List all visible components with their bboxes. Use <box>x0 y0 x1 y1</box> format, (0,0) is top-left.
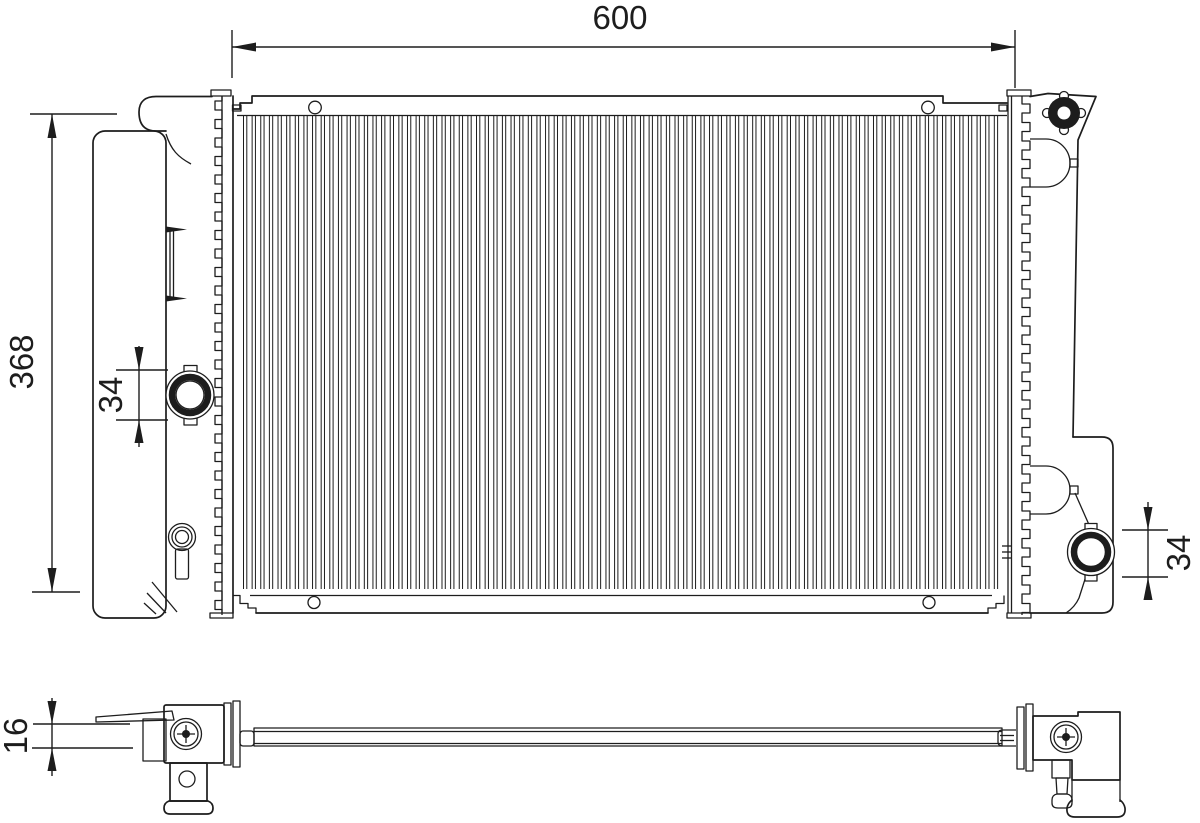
dim-outlet-label: 34 <box>1160 535 1197 572</box>
arrowhead <box>48 701 57 724</box>
bracket-cutout-upper <box>1030 139 1070 187</box>
lower-bracket <box>170 763 207 801</box>
castellated-edge-left <box>215 96 222 615</box>
right-side-plate <box>1002 90 1031 618</box>
dim-width-label: 600 <box>592 0 647 36</box>
radiator-drawing-page: 600 368 34 34 16 <box>0 0 1200 823</box>
radiator-technical-drawing: 600 368 34 34 16 <box>0 0 1200 823</box>
arrowhead <box>48 748 57 771</box>
core-pin <box>240 731 254 746</box>
left-tank <box>93 97 212 619</box>
right-tank-bulge <box>1030 437 1113 613</box>
down-pipe <box>1056 778 1068 794</box>
cutout-pin <box>1070 486 1078 494</box>
castellated-edge-right <box>1022 96 1030 615</box>
drain-plug <box>169 524 196 580</box>
end-plate <box>233 701 240 767</box>
down-pipe-foot <box>1052 794 1072 808</box>
front-view <box>93 90 1115 618</box>
left-tank-body <box>93 131 166 618</box>
hook-strap-curve <box>166 134 191 164</box>
tank-rib-line <box>1075 493 1090 527</box>
arrowhead <box>1144 507 1153 530</box>
bracket-tab-upper <box>166 227 187 233</box>
side-plate-cap <box>1007 90 1031 96</box>
left-side-plate <box>210 90 233 618</box>
end-plate <box>224 703 231 765</box>
fitting-housing <box>1033 712 1120 780</box>
bottom-header-plate <box>233 596 1004 614</box>
arrowhead <box>48 568 57 592</box>
right-tank <box>1030 92 1115 614</box>
tank-rib-line <box>1066 573 1087 613</box>
dim-height-label: 368 <box>3 334 40 389</box>
pipe-end-view <box>1051 722 1082 753</box>
arrowhead <box>135 420 144 443</box>
filler-neck <box>166 366 214 426</box>
header-hole <box>922 101 935 114</box>
side-plate-foot <box>1007 613 1031 618</box>
bracket-foot <box>164 801 213 814</box>
header-hole <box>309 101 322 114</box>
core <box>233 96 1008 613</box>
header-hole <box>308 597 320 609</box>
arrowhead <box>991 43 1015 52</box>
bracket-blade <box>96 711 174 722</box>
right-tank-outline-top <box>1030 94 1096 438</box>
dimension-width-600: 600 <box>232 0 1015 88</box>
tank-block-foot <box>1067 800 1125 817</box>
mounting-grommet <box>1043 92 1086 135</box>
bracket-tab-lower <box>166 296 187 302</box>
arrowhead <box>135 347 144 370</box>
tank-bottom-gusset <box>144 582 177 614</box>
header-hole <box>923 597 935 609</box>
pipe-neck <box>1052 760 1070 778</box>
outlet-pipe <box>1068 524 1115 582</box>
end-plate <box>1026 704 1033 771</box>
bottom-profile-view <box>96 701 1125 817</box>
dimension-thickness-16: 16 <box>0 698 133 776</box>
profile-inlet-fitting <box>96 701 254 814</box>
core-fins <box>244 116 998 589</box>
end-plate <box>1017 707 1024 769</box>
dimension-outlet-34: 34 <box>1122 502 1197 600</box>
pipe-end-view <box>171 719 202 750</box>
side-plate-cap <box>211 90 231 96</box>
core-end-ticks <box>1002 546 1011 558</box>
mounting-hook <box>139 97 212 132</box>
bracket-hole <box>179 771 195 787</box>
arrowhead <box>232 43 256 52</box>
arrowhead <box>48 114 57 138</box>
top-header-plate <box>233 96 1008 116</box>
arrowhead <box>1144 577 1153 600</box>
dim-thickness-label: 16 <box>0 718 34 755</box>
profile-core-band <box>254 728 1002 746</box>
dimension-height-368: 368 <box>3 114 117 592</box>
bracket-cutout-lower <box>1030 466 1070 514</box>
fitting-collar <box>143 719 166 761</box>
dim-inlet-label: 34 <box>92 377 129 414</box>
dimension-inlet-34: 34 <box>92 346 168 447</box>
profile-outlet-fitting <box>998 704 1125 817</box>
